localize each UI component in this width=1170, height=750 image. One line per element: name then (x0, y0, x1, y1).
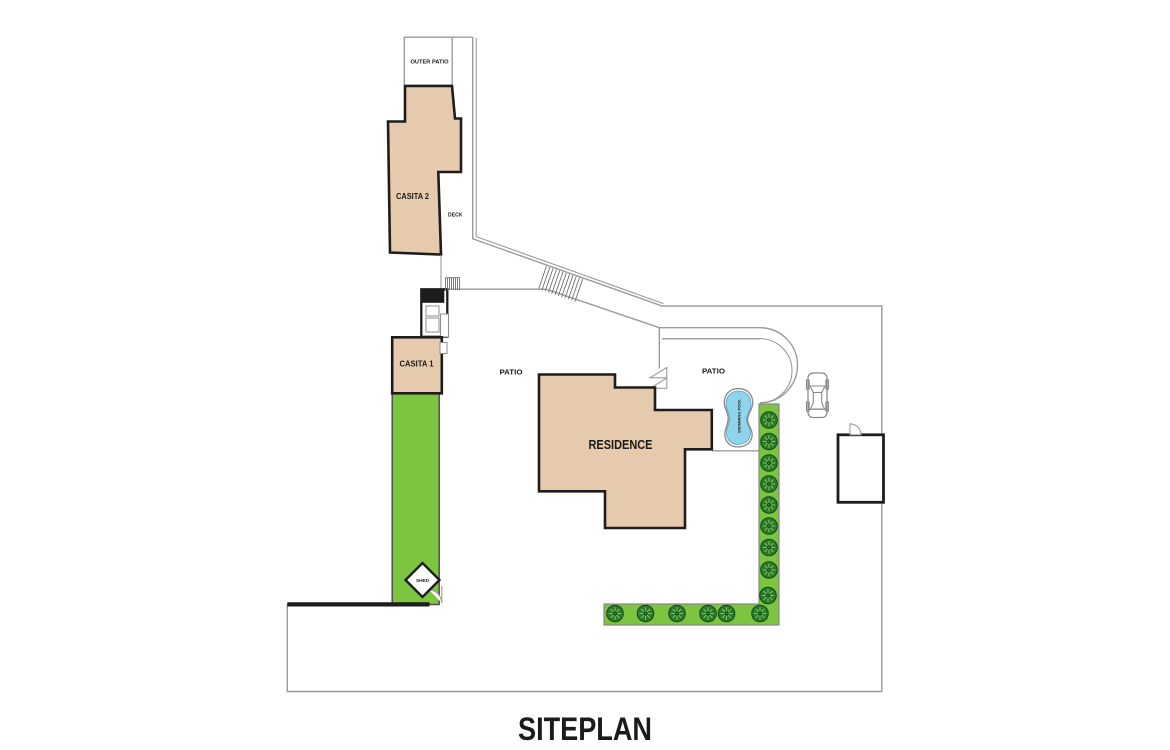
swimming-pool: SWIMMING POOL (724, 389, 753, 447)
vestibule-room (426, 306, 439, 316)
garage-building (838, 424, 884, 503)
tree-icon (607, 605, 624, 622)
pool-label: SWIMMING POOL (737, 398, 741, 433)
tree-icon (761, 476, 778, 493)
vestibule-closet (441, 314, 449, 337)
tree-icon (760, 587, 777, 604)
property-boundary (287, 37, 882, 692)
car-icon (807, 373, 829, 418)
deck-railing-inner-line (476, 38, 663, 304)
outer-patio-label: OUTER PATIO (411, 60, 449, 66)
tree-icon (761, 518, 778, 535)
entry-stairs-icon (445, 278, 460, 290)
tree-icon (761, 412, 778, 429)
bay-arc-inner (760, 339, 792, 403)
tree-icon (669, 605, 686, 622)
walkway-stairs-icon (539, 266, 583, 301)
casita-1-label: CASITA 1 (400, 360, 434, 369)
tree-icon (718, 605, 735, 622)
deck-label: DECK (448, 213, 463, 219)
vestibule-solid (421, 289, 444, 303)
patio-east-label: PATIO (702, 367, 725, 376)
casita-1-door-nook (440, 343, 447, 354)
casita-2-building (388, 86, 461, 255)
siteplan-page: OUTER PATIO CASITA 2 DECK CASITA 1 RESID… (0, 0, 1170, 750)
tree-icon (761, 433, 778, 450)
patio-west-label: PATIO (500, 368, 523, 377)
casita-2-label: CASITA 2 (396, 192, 429, 201)
tree-icon (761, 497, 778, 514)
tree-icon (752, 605, 769, 622)
residence-label: RESIDENCE (589, 438, 653, 452)
walkway (447, 266, 760, 368)
walkway-edge (447, 289, 760, 368)
garage-door-icon (850, 424, 861, 435)
tree-icon (761, 539, 778, 556)
shed-label: SHED (416, 578, 429, 583)
tree-icon (700, 605, 717, 622)
garage-outline (838, 435, 884, 503)
boundary-line (287, 37, 882, 692)
tree-icon (761, 455, 778, 472)
tree-icon (637, 605, 654, 622)
french-doors-icon (650, 368, 667, 389)
siteplan-drawing: OUTER PATIO CASITA 2 DECK CASITA 1 RESID… (0, 0, 1170, 750)
entry-vestibule (421, 255, 460, 337)
vestibule-room (426, 318, 439, 332)
tree-icon (761, 562, 778, 579)
page-title: SITEPLAN (518, 711, 652, 747)
